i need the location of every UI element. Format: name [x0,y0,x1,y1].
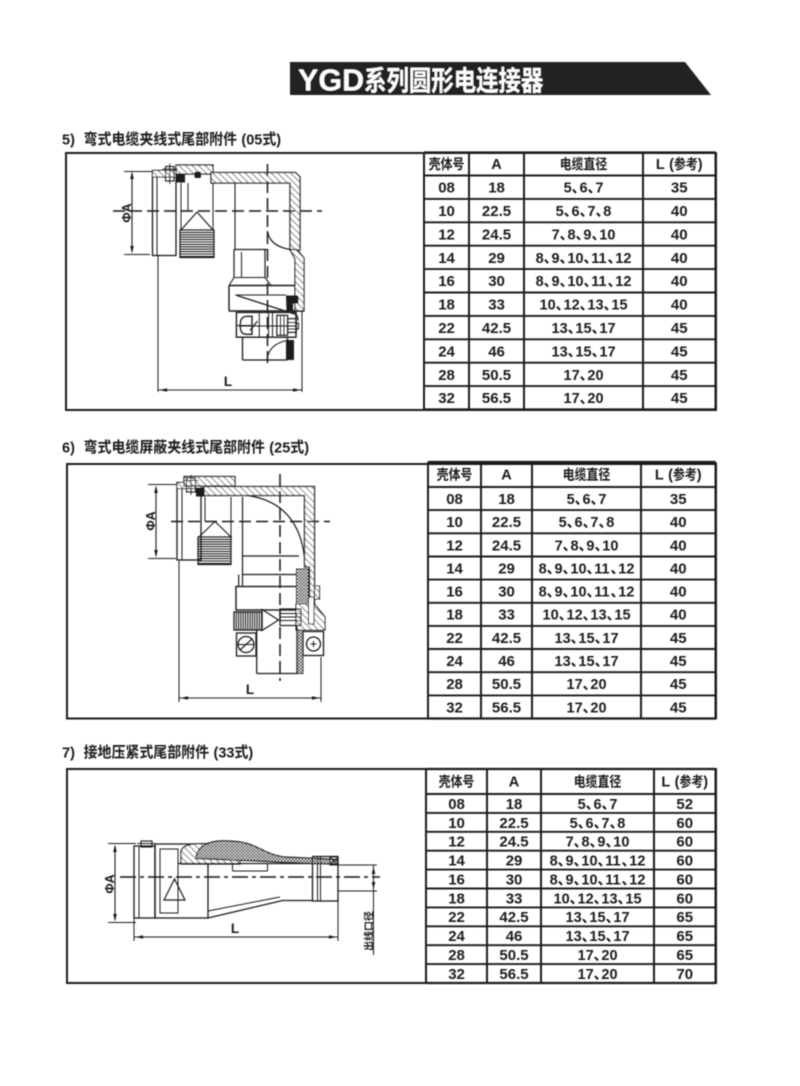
svg-text:ΦA: ΦA [144,511,158,530]
svg-text:15: 15 [578,654,594,670]
svg-text:28: 28 [438,367,455,384]
svg-text:L: L [661,775,670,791]
svg-text:17: 17 [564,391,580,407]
svg-text:60: 60 [676,853,693,870]
svg-text:10: 10 [554,891,570,907]
svg-text:(25: (25 [269,441,290,457]
svg-text:10: 10 [567,274,583,290]
svg-text:40: 40 [670,607,687,624]
svg-text:20: 20 [601,948,617,964]
svg-text:12: 12 [578,891,594,907]
svg-text:70: 70 [676,966,693,983]
svg-text:7: 7 [555,538,563,554]
svg-text:15: 15 [589,929,605,945]
svg-text:8: 8 [571,538,579,554]
svg-text:5: 5 [559,515,567,531]
svg-text:15: 15 [589,910,605,926]
svg-text:13: 13 [601,891,617,907]
svg-text:42.5: 42.5 [492,630,521,647]
svg-text:10: 10 [570,585,586,601]
svg-text:11: 11 [594,585,609,601]
svg-text:12: 12 [618,585,634,601]
svg-text:45: 45 [671,343,688,360]
svg-text:L: L [655,468,664,484]
svg-text:40: 40 [671,250,688,267]
svg-text:18: 18 [498,491,515,508]
svg-text:65: 65 [676,909,693,926]
svg-text:45: 45 [671,320,688,337]
svg-text:50.5: 50.5 [499,947,528,964]
svg-text:65: 65 [676,928,693,945]
svg-text:7: 7 [598,492,606,508]
svg-text:15: 15 [625,891,641,907]
svg-text:10: 10 [599,227,615,243]
svg-text:33: 33 [488,297,505,314]
svg-text:7): 7) [62,746,75,762]
svg-text:32: 32 [446,699,463,716]
svg-text:10: 10 [570,561,586,577]
svg-text:9: 9 [597,835,605,851]
svg-text:20: 20 [587,368,603,384]
svg-text:11: 11 [591,274,606,290]
svg-text:56.5: 56.5 [482,390,511,407]
svg-text:42.5: 42.5 [482,320,511,337]
svg-text:08: 08 [438,180,455,197]
svg-text:5: 5 [564,181,572,197]
svg-text:): ) [698,157,703,173]
svg-text:14: 14 [446,560,463,577]
svg-text:9: 9 [566,854,574,870]
svg-text:40: 40 [671,203,688,220]
svg-text:60: 60 [676,815,693,832]
svg-text:16: 16 [448,872,465,889]
svg-text:5: 5 [567,492,575,508]
svg-text:13: 13 [587,298,603,314]
svg-text:7: 7 [609,797,617,813]
svg-text:46: 46 [498,653,515,670]
svg-text:22.5: 22.5 [492,514,521,531]
svg-text:35: 35 [671,180,688,197]
svg-text:10: 10 [540,298,556,314]
svg-text:50.5: 50.5 [482,367,511,384]
svg-text:): ) [703,775,708,791]
svg-text:24: 24 [438,343,455,360]
svg-text:17: 17 [567,677,583,693]
svg-text:33: 33 [498,607,515,624]
svg-text:45: 45 [671,390,688,407]
svg-text:6: 6 [586,816,594,832]
svg-text:(: ( [675,775,680,791]
svg-text:17: 17 [599,344,615,360]
svg-text:45: 45 [670,653,687,670]
svg-text:20: 20 [590,677,606,693]
svg-text:(33: (33 [214,746,235,762]
svg-text:45: 45 [671,367,688,384]
svg-text:17: 17 [567,700,583,716]
svg-text:17: 17 [602,631,618,647]
svg-text:8: 8 [539,561,547,577]
svg-text:L: L [231,921,239,936]
svg-text:40: 40 [670,537,687,554]
svg-text:56.5: 56.5 [499,966,528,983]
svg-text:13: 13 [566,910,582,926]
svg-text:10: 10 [567,251,583,267]
svg-text:12: 12 [618,561,634,577]
svg-text:24.5: 24.5 [492,537,521,554]
svg-text:8: 8 [539,585,547,601]
svg-text:10: 10 [446,514,463,531]
svg-text:8: 8 [550,873,558,889]
svg-text:7: 7 [566,835,574,851]
svg-text:17: 17 [613,910,629,926]
svg-text:33: 33 [506,890,523,907]
svg-text:8: 8 [550,854,558,870]
svg-text:30: 30 [488,273,505,290]
svg-text:60: 60 [676,890,693,907]
svg-text:7: 7 [601,816,609,832]
svg-text:5: 5 [570,816,578,832]
svg-text:18: 18 [448,890,465,907]
svg-text:6: 6 [580,181,588,197]
svg-text:5: 5 [578,797,586,813]
svg-text:20: 20 [601,967,617,983]
svg-text:12: 12 [438,226,455,243]
svg-text:13: 13 [555,654,571,670]
svg-text:6): 6) [62,441,75,457]
svg-text:5): 5) [62,133,75,149]
svg-text:): ) [697,468,702,484]
svg-text:YGD: YGD [298,64,364,98]
svg-text:(: ( [668,468,673,484]
svg-text:40: 40 [671,297,688,314]
svg-text:13: 13 [555,631,571,647]
svg-text:13: 13 [552,344,568,360]
svg-text:A: A [509,775,520,791]
svg-text:11: 11 [591,251,606,267]
svg-text:9: 9 [552,251,560,267]
svg-text:08: 08 [446,491,463,508]
svg-text:30: 30 [498,584,515,601]
svg-text:15: 15 [614,608,630,624]
svg-text:12: 12 [567,608,583,624]
svg-text:7: 7 [552,227,560,243]
svg-text:8: 8 [536,251,544,267]
svg-text:8: 8 [536,274,544,290]
svg-text:22: 22 [446,630,463,647]
svg-text:29: 29 [488,250,505,267]
svg-text:ΦA: ΦA [120,203,134,222]
svg-text:28: 28 [446,676,463,693]
svg-text:A: A [491,157,502,173]
svg-text:22.5: 22.5 [499,815,528,832]
svg-text:50.5: 50.5 [492,676,521,693]
svg-text:24: 24 [448,928,465,945]
svg-text:6: 6 [572,204,580,220]
svg-text:12: 12 [446,537,463,554]
svg-text:18: 18 [506,796,523,813]
svg-text:40: 40 [670,584,687,601]
svg-text:60: 60 [676,872,693,889]
svg-text:16: 16 [446,584,463,601]
svg-text:40: 40 [671,273,688,290]
svg-text:46: 46 [488,343,505,360]
svg-text:18: 18 [446,607,463,624]
svg-text:7: 7 [587,204,595,220]
svg-text:15: 15 [575,344,591,360]
svg-text:7: 7 [595,181,603,197]
svg-text:20: 20 [587,391,603,407]
svg-text:12: 12 [615,274,631,290]
svg-text:9: 9 [552,274,560,290]
svg-text:29: 29 [498,560,515,577]
svg-text:10: 10 [448,815,465,832]
svg-text:46: 46 [506,928,523,945]
svg-text:28: 28 [448,947,465,964]
svg-text:10: 10 [602,538,618,554]
svg-text:24.5: 24.5 [482,226,511,243]
svg-text:10: 10 [543,608,559,624]
svg-text:8: 8 [617,816,625,832]
svg-text:10: 10 [581,873,597,889]
svg-text:45: 45 [670,676,687,693]
svg-text:17: 17 [578,967,594,983]
svg-text:18: 18 [488,180,505,197]
svg-text:6: 6 [594,797,602,813]
svg-text:): ) [304,441,309,457]
svg-text:14: 14 [438,250,455,267]
svg-text:22: 22 [448,909,465,926]
svg-text:15: 15 [578,631,594,647]
svg-text:L: L [656,157,665,173]
svg-text:17: 17 [613,929,629,945]
svg-text:29: 29 [506,853,523,870]
svg-text:22.5: 22.5 [482,203,511,220]
svg-text:6: 6 [583,492,591,508]
svg-text:12: 12 [629,873,645,889]
svg-text:30: 30 [506,872,523,889]
svg-text:11: 11 [605,873,620,889]
svg-text:32: 32 [438,390,455,407]
svg-text:12: 12 [564,298,580,314]
svg-text:A: A [501,468,512,484]
svg-text:5: 5 [556,204,564,220]
svg-text:8: 8 [568,227,576,243]
svg-text:11: 11 [594,561,609,577]
svg-text:12: 12 [615,251,631,267]
svg-text:9: 9 [586,538,594,554]
svg-text:12: 12 [448,834,465,851]
svg-text:40: 40 [670,514,687,531]
svg-text:13: 13 [566,929,582,945]
svg-text:32: 32 [448,966,465,983]
svg-text:9: 9 [555,585,563,601]
svg-text:9: 9 [583,227,591,243]
svg-text:15: 15 [575,321,591,337]
svg-text:45: 45 [670,699,687,716]
svg-text:L: L [224,374,232,389]
svg-text:11: 11 [605,854,620,870]
svg-text:08: 08 [448,796,465,813]
svg-text:24: 24 [446,653,463,670]
svg-text:(05: (05 [241,133,262,149]
svg-text:ΦA: ΦA [103,874,117,893]
svg-text:10: 10 [438,203,455,220]
svg-text:L: L [246,682,254,697]
svg-text:7: 7 [590,515,598,531]
svg-text:40: 40 [671,226,688,243]
svg-text:8: 8 [582,835,590,851]
svg-text:13: 13 [590,608,606,624]
svg-text:): ) [276,133,281,149]
svg-text:22: 22 [438,320,455,337]
svg-text:13: 13 [552,321,568,337]
svg-text:6: 6 [575,515,583,531]
svg-text:10: 10 [581,854,597,870]
svg-text:35: 35 [670,491,687,508]
svg-text:45: 45 [670,630,687,647]
svg-text:(: ( [669,157,674,173]
svg-text:17: 17 [599,321,615,337]
svg-text:52: 52 [676,796,693,813]
svg-text:18: 18 [438,297,455,314]
svg-text:17: 17 [564,368,580,384]
svg-text:65: 65 [676,947,693,964]
svg-text:42.5: 42.5 [499,909,528,926]
svg-text:60: 60 [676,834,693,851]
svg-text:10: 10 [613,835,629,851]
svg-text:12: 12 [629,854,645,870]
svg-text:15: 15 [611,298,627,314]
svg-text:14: 14 [448,853,465,870]
svg-text:9: 9 [566,873,574,889]
svg-text:40: 40 [670,560,687,577]
svg-text:8: 8 [606,515,614,531]
svg-text:17: 17 [578,948,594,964]
svg-text:24.5: 24.5 [499,834,528,851]
svg-text:9: 9 [555,561,563,577]
svg-text:20: 20 [590,700,606,716]
svg-text:17: 17 [602,654,618,670]
svg-text:): ) [248,746,253,762]
svg-text:16: 16 [438,273,455,290]
svg-text:8: 8 [603,204,611,220]
svg-text:56.5: 56.5 [492,699,521,716]
